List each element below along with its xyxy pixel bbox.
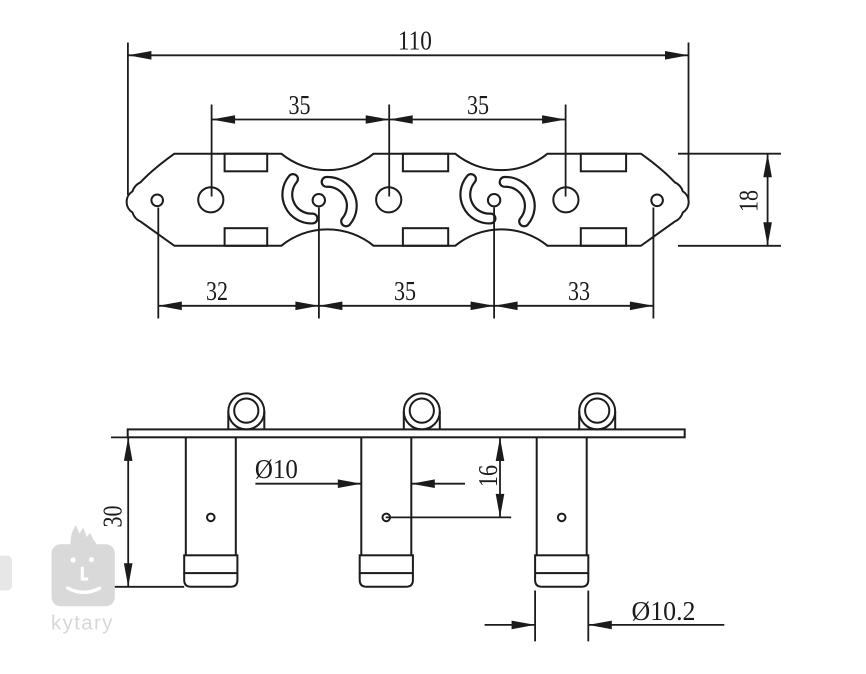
svg-text:Ø10.2: Ø10.2 [632,596,696,626]
svg-text:Ø10: Ø10 [255,454,298,484]
svg-text:35: 35 [467,90,489,120]
svg-text:kytary: kytary [51,612,114,635]
svg-text:110: 110 [398,26,432,56]
svg-text:35: 35 [289,90,311,120]
svg-text:16: 16 [473,465,503,487]
svg-text:33: 33 [568,276,590,306]
svg-text:35: 35 [394,276,416,306]
svg-text:18: 18 [734,190,764,212]
svg-text:30: 30 [98,506,128,528]
svg-text:32: 32 [206,276,228,306]
